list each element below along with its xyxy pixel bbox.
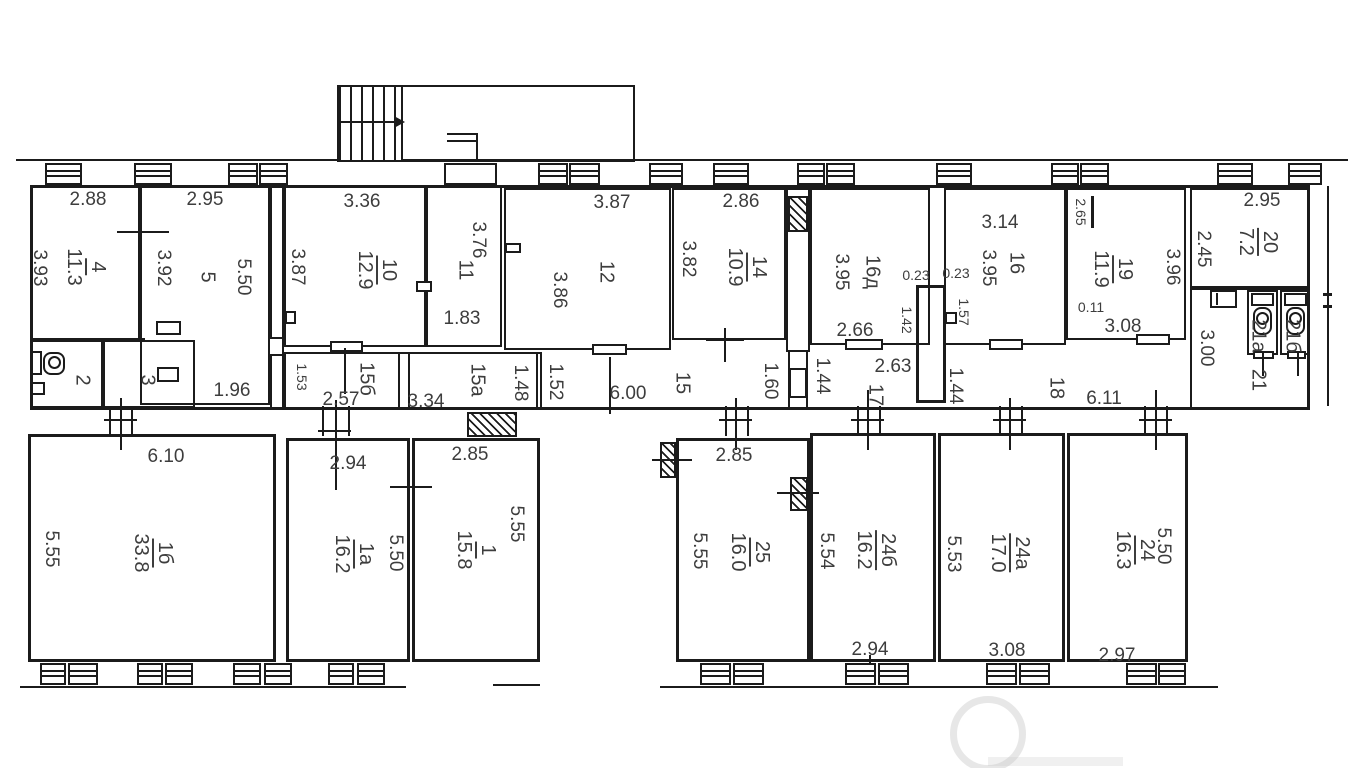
dim-room25-top: 2.85	[716, 445, 753, 467]
window	[357, 663, 385, 685]
connector-1b-wall	[109, 406, 111, 436]
connector-25-wall	[747, 406, 749, 436]
connector-24b-wall	[879, 406, 881, 436]
room-16d-number: 16д	[861, 255, 884, 289]
dim-corridor17-left: 1.44	[811, 358, 833, 395]
connector-1b-wall	[131, 406, 133, 436]
window	[649, 163, 683, 185]
shaft-hatch-25-24b	[790, 477, 808, 511]
dim-corridor15-left: 1.52	[544, 364, 566, 401]
dim-room19-right: 3.96	[1161, 249, 1183, 286]
room-25-area: 16.0	[727, 533, 749, 572]
window	[986, 663, 1017, 685]
corridor-junction-door	[789, 368, 807, 398]
connector-1a-tick	[318, 430, 351, 432]
room-24-label: 24 16.3	[1112, 531, 1158, 570]
dim-room4-left: 3.93	[28, 250, 50, 287]
tick-25-left	[652, 459, 692, 461]
window	[826, 163, 855, 185]
window	[878, 663, 909, 685]
north-exterior-line	[16, 159, 1348, 161]
window	[134, 163, 172, 185]
duct-shaft	[916, 285, 946, 403]
room-12-outline	[504, 188, 671, 350]
dim-corridor18-width: 6.11	[1086, 388, 1122, 410]
room-20-label: 20 7.2	[1235, 228, 1281, 256]
dim-room16-nook: 1.57	[956, 298, 972, 325]
nook-wall-room19	[1091, 196, 1094, 228]
dim-room19-step: 0.11	[1078, 299, 1104, 315]
dim-room16-top: 3.14	[982, 212, 1019, 234]
dim-room1b-left: 5.55	[40, 531, 62, 568]
door-tick-stall21b	[1297, 352, 1299, 376]
window	[713, 163, 749, 185]
window	[1217, 163, 1253, 185]
stall-21b-number: 21б	[1281, 319, 1304, 353]
room-11-number: 11	[454, 260, 477, 281]
window	[68, 663, 98, 685]
room-10-area: 12.9	[354, 251, 376, 290]
door-opening-room12	[592, 344, 627, 355]
dim-room24a-left: 5.53	[942, 536, 964, 573]
corridor-15-number: 15	[671, 372, 694, 394]
room-14-number: 14	[746, 253, 770, 281]
room-12-number: 12	[595, 261, 618, 283]
connector-24-tick	[1139, 419, 1172, 421]
room-1-number: 1	[475, 541, 499, 558]
dim-room11-bottom: 1.83	[444, 308, 481, 330]
room-1b-area: 33.8	[130, 534, 152, 573]
tick-1a-1	[390, 486, 432, 488]
entry-threshold-mark	[447, 140, 477, 142]
room-24-area: 16.3	[1112, 531, 1134, 570]
dim-room25-left: 5.55	[688, 533, 710, 570]
room-20-area: 7.2	[1235, 228, 1257, 256]
dim-corridor15-width: 6.00	[610, 383, 647, 405]
window	[328, 663, 354, 685]
connector-24a-wall	[999, 406, 1001, 436]
dim-room19-nook: 2.65	[1073, 198, 1089, 225]
dim-room20-top: 2.95	[1244, 190, 1281, 212]
corridor-17-number: 17	[864, 384, 887, 406]
room-1b-label: 1б 33.8	[130, 534, 176, 573]
dim-room5-top: 2.95	[187, 189, 224, 211]
room-4-number: 4	[85, 258, 109, 275]
dim-room1a-top: 2.94	[330, 453, 367, 475]
dim-room1b-top: 6.10	[148, 446, 185, 468]
corridor-15a-number: 15а	[466, 363, 489, 396]
stair-arrow-head	[394, 116, 405, 128]
sink-divider	[1216, 293, 1218, 305]
connector-24a-tick	[993, 419, 1026, 421]
room-10-number: 10	[376, 256, 400, 284]
dim-room20-left: 2.45	[1192, 231, 1214, 268]
room-19-area: 11.9	[1090, 250, 1112, 287]
dim-room5-bottom: 1.96	[214, 380, 251, 402]
room-20-number: 20	[1257, 228, 1281, 256]
window	[228, 163, 258, 185]
room-1b-number: 1б	[152, 539, 176, 568]
room-24b-area: 16.2	[853, 531, 875, 570]
window	[733, 663, 764, 685]
room-19-number: 19	[1112, 255, 1136, 283]
door-tick-room10	[344, 348, 346, 394]
porch-steps	[444, 163, 497, 185]
door-tick-room14	[706, 339, 744, 341]
door-tick-room4-5	[117, 231, 169, 233]
adjacent-wall-mark	[1323, 305, 1332, 308]
dim-room14-top: 2.86	[723, 191, 760, 213]
room-1a-label: 1а 16.2	[331, 535, 377, 574]
window	[1019, 663, 1050, 685]
room-4-label: 4 11.3	[63, 248, 109, 285]
window	[797, 163, 825, 185]
dim-room1a-right: 5.50	[384, 535, 406, 572]
dim-corridor15-right: 1.60	[759, 363, 781, 400]
room-21-number: 21	[1247, 369, 1270, 391]
room-1a-area: 16.2	[331, 535, 353, 574]
floor-plan-canvas: 2.88 2.95 3.36 3.87 2.86 3.14 2.95 1.96 …	[0, 0, 1367, 768]
dim-room19-bottom: 3.08	[1105, 316, 1142, 338]
corridor-wall-15a-15	[536, 352, 542, 410]
dim-room16d-left: 3.95	[830, 254, 852, 291]
adjacent-wall-mark	[1323, 293, 1332, 296]
room-19-label: 19 11.9	[1090, 250, 1136, 287]
window	[233, 663, 261, 685]
radiator-icon	[416, 281, 432, 292]
dim-corridor15a-right: 1.48	[509, 365, 531, 402]
room-24a-label: 24а 17.0	[987, 533, 1033, 572]
dim-room4-right: 3.92	[152, 250, 174, 287]
south-baseline-mid	[493, 684, 540, 686]
entry-threshold-mark	[447, 133, 477, 135]
room-24-number: 24	[1134, 536, 1158, 564]
door-opening-room16	[989, 339, 1023, 350]
room-24b-number: 24б	[875, 530, 899, 570]
corridor-18-number: 18	[1045, 377, 1068, 399]
dim-room12-left: 3.86	[548, 272, 570, 309]
door-opening-room10	[330, 341, 363, 352]
room-10-label: 10 12.9	[354, 251, 400, 290]
radiator-icon	[156, 321, 181, 335]
window	[40, 663, 66, 685]
dim-room5-height: 5.50	[232, 259, 254, 296]
corridor-15b-number: 15б	[355, 362, 378, 396]
room-14-area: 10.9	[724, 248, 746, 287]
stairwell-wall	[270, 185, 284, 410]
connector-24-wall	[1166, 406, 1168, 436]
toilet-tank-icon	[1251, 293, 1274, 306]
dim-room16-left: 3.95	[977, 250, 999, 287]
room-3-number: 3	[136, 374, 159, 385]
window	[1288, 163, 1322, 185]
connector-24b-tick	[851, 419, 884, 421]
window	[1051, 163, 1079, 185]
dim-room12-top: 3.87	[594, 192, 631, 214]
window	[1080, 163, 1109, 185]
toilet-bowl-icon	[48, 356, 61, 369]
room-24a-area: 17.0	[987, 534, 1009, 573]
dim-corridor15a-width: 3.34	[408, 391, 445, 413]
dim-room16d-bottom: 2.66	[837, 320, 874, 342]
room-16-number: 16	[1005, 252, 1028, 274]
dim-corridor18-left: 1.44	[944, 368, 966, 405]
connector-24-wall	[1144, 406, 1146, 436]
sink-icon	[1210, 290, 1237, 308]
dim-wall-b: 0.23	[942, 265, 969, 281]
room-24a-number: 24а	[1009, 533, 1033, 572]
room-5-number: 5	[196, 271, 219, 282]
door-tick-room14	[724, 328, 726, 362]
room-14-label: 14 10.9	[724, 248, 770, 287]
dim-room10-left: 3.87	[286, 249, 308, 286]
connector-25-tick	[719, 419, 752, 421]
dim-room21-height: 3.00	[1195, 330, 1217, 367]
room-2-number: 2	[71, 374, 94, 385]
south-baseline-right	[660, 686, 1218, 688]
toilet-tank-icon	[1284, 293, 1307, 306]
door-tick-room3	[110, 338, 145, 340]
entry-line	[476, 133, 478, 162]
window	[264, 663, 292, 685]
sink-icon	[31, 382, 45, 395]
room-1a-number: 1а	[353, 540, 377, 568]
radiator-icon	[285, 311, 296, 324]
adjacent-wall-line	[1327, 186, 1329, 406]
room-4-area: 11.3	[63, 248, 85, 285]
dim-room10-top: 3.36	[344, 191, 381, 213]
connector-24a-wall	[1021, 406, 1023, 436]
corridor-15a-top-wall	[410, 352, 540, 354]
dim-wall-a: 0.23	[902, 267, 929, 283]
window	[569, 163, 600, 185]
dim-corridor15b-left: 1.53	[294, 363, 310, 390]
window	[259, 163, 288, 185]
room-25-label: 25 16.0	[727, 533, 773, 572]
window	[137, 663, 163, 685]
stall-21a-number: 21а	[1247, 319, 1270, 352]
vent-shaft-hatch	[788, 196, 808, 232]
dim-room11-height: 3.76	[467, 222, 489, 259]
room-24b-label: 24б 16.2	[853, 530, 899, 570]
connector-24b-wall	[857, 406, 859, 436]
dim-shaft-width: 1.42	[899, 306, 915, 333]
shaft-hatch-room1	[467, 412, 517, 437]
room-1-area: 15.8	[453, 531, 475, 570]
dim-room24-bottom: 2.97	[1099, 645, 1136, 667]
tick-1a-1	[413, 470, 415, 494]
window	[45, 163, 82, 185]
window	[700, 663, 731, 685]
window	[1158, 663, 1186, 685]
toilet-tank-icon	[31, 351, 42, 375]
tick-25-24b	[777, 492, 819, 494]
watermark-smudge	[988, 757, 1123, 766]
window	[538, 163, 568, 185]
door-opening-room5	[268, 337, 284, 356]
dim-room24b-bottom: 2.94	[852, 639, 889, 661]
stair-arrow-line	[341, 121, 395, 123]
window	[936, 163, 972, 185]
dim-room4-top: 2.88	[70, 189, 107, 211]
dim-room1-right: 5.55	[505, 506, 527, 543]
connector-1b-tick	[104, 419, 137, 421]
connector-25-wall	[725, 406, 727, 436]
window	[165, 663, 193, 685]
radiator-icon	[157, 367, 179, 382]
dim-room24b-left: 5.54	[815, 533, 837, 570]
dim-room1-top: 2.85	[452, 444, 489, 466]
window	[845, 663, 876, 685]
room-1-label: 1 15.8	[453, 531, 499, 570]
dim-room24a-bottom: 3.08	[989, 640, 1026, 662]
dim-room14-left: 3.82	[677, 241, 699, 278]
dim-corridor17-top: 2.63	[875, 356, 912, 378]
south-baseline-left	[20, 686, 406, 688]
room-25-number: 25	[749, 538, 773, 566]
radiator-icon	[505, 243, 521, 253]
